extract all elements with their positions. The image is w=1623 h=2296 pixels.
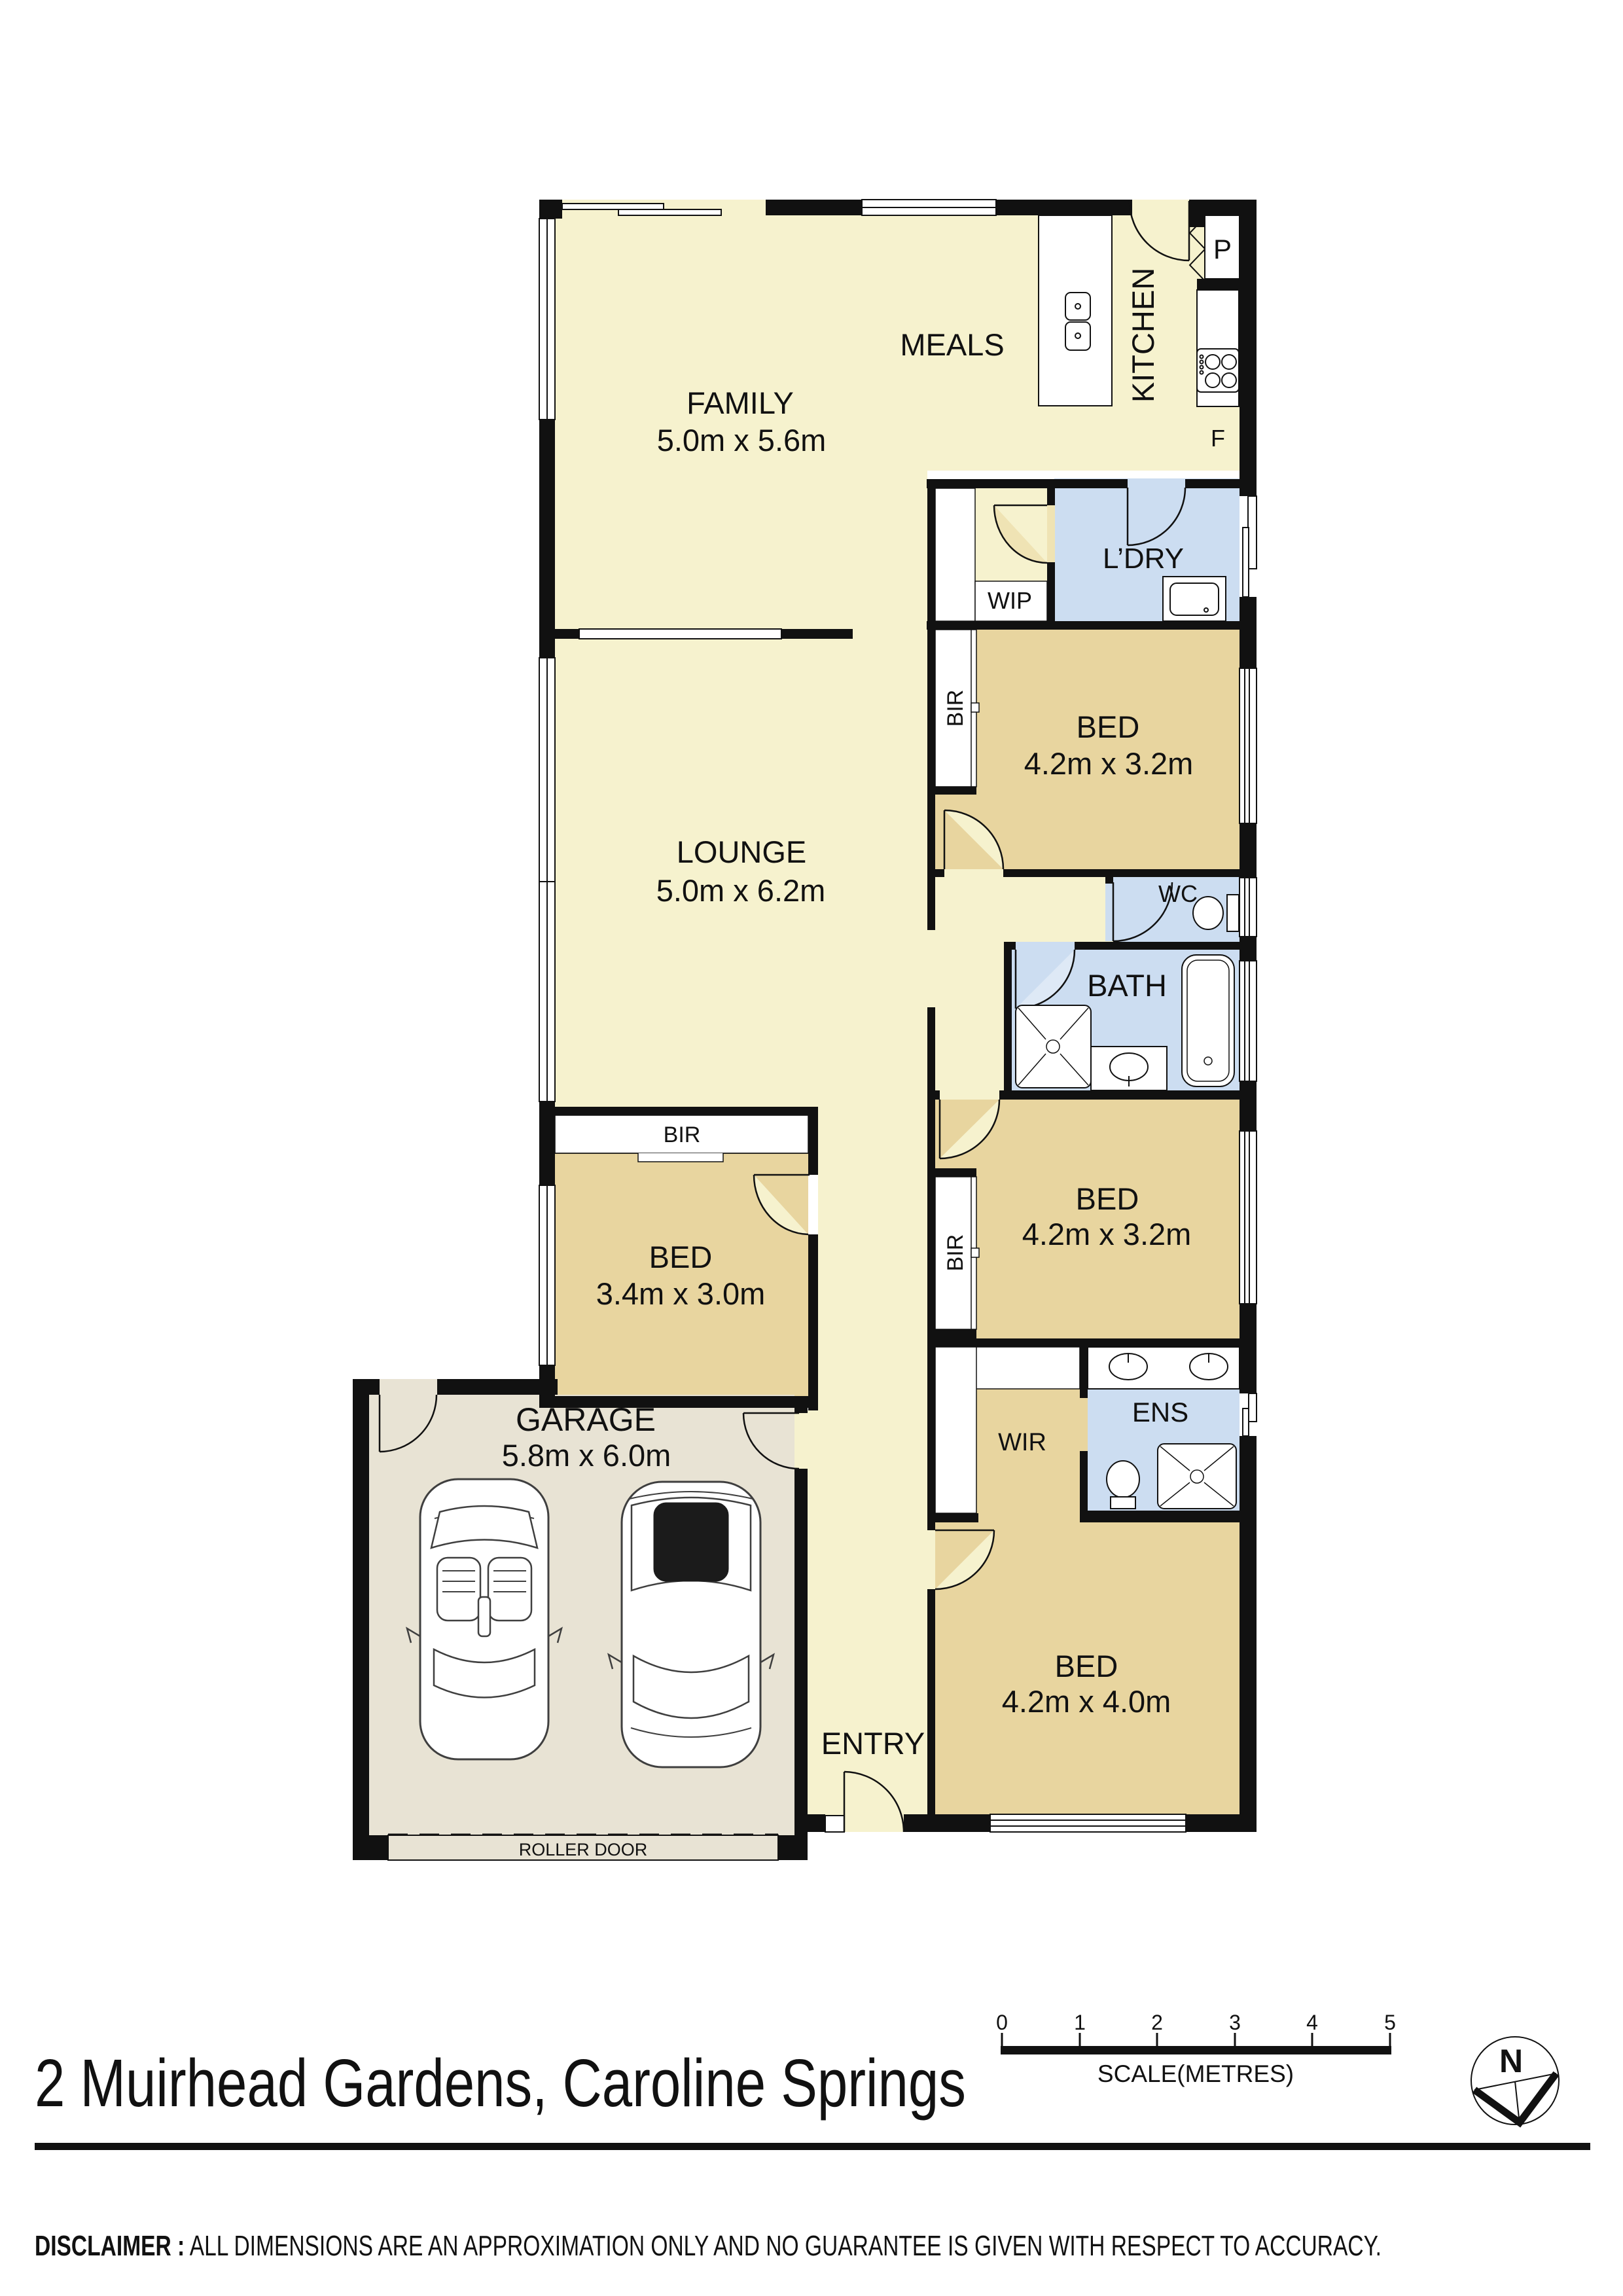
svg-text:4: 4	[1306, 2011, 1318, 2034]
svg-text:FAMILY: FAMILY	[687, 386, 794, 420]
svg-text:P: P	[1213, 234, 1232, 264]
svg-text:5.8m x 6.0m: 5.8m x 6.0m	[502, 1438, 671, 1473]
svg-text:LOUNGE: LOUNGE	[677, 834, 807, 869]
svg-text:BED: BED	[649, 1240, 713, 1274]
svg-text:ENTRY: ENTRY	[821, 1726, 925, 1761]
svg-text:L’DRY: L’DRY	[1103, 543, 1184, 575]
svg-text:2 Muirhead Gardens, Caroline S: 2 Muirhead Gardens, Caroline Springs	[35, 2045, 966, 2121]
svg-text:WC: WC	[1158, 880, 1198, 907]
svg-text:F: F	[1211, 425, 1225, 452]
svg-text:DISCLAIMER : ALL DIMENSIONS AR: DISCLAIMER : ALL DIMENSIONS ARE AN APPRO…	[35, 2230, 1382, 2262]
svg-text:0: 0	[996, 2011, 1008, 2034]
svg-text:SCALE(METRES): SCALE(METRES)	[1097, 2060, 1294, 2087]
svg-text:WIR: WIR	[998, 1429, 1046, 1456]
svg-text:4.2m x 3.2m: 4.2m x 3.2m	[1022, 1217, 1192, 1251]
svg-text:3.4m x 3.0m: 3.4m x 3.0m	[596, 1276, 766, 1311]
svg-text:4.2m x 3.2m: 4.2m x 3.2m	[1024, 746, 1194, 781]
svg-text:5: 5	[1384, 2011, 1396, 2034]
svg-text:BIR: BIR	[943, 690, 968, 727]
svg-text:BED: BED	[1076, 1181, 1139, 1216]
svg-text:BED: BED	[1055, 1649, 1118, 1683]
svg-text:1: 1	[1074, 2011, 1086, 2034]
svg-text:MEALS: MEALS	[900, 327, 1004, 362]
svg-text:3: 3	[1229, 2011, 1241, 2034]
svg-text:KITCHEN: KITCHEN	[1126, 268, 1160, 403]
svg-text:5.0m x 6.2m: 5.0m x 6.2m	[656, 873, 826, 908]
svg-text:BIR: BIR	[943, 1234, 968, 1272]
svg-text:WIP: WIP	[988, 587, 1032, 614]
svg-text:GARAGE: GARAGE	[516, 1401, 656, 1438]
svg-text:N: N	[1499, 2043, 1523, 2079]
svg-text:BATH: BATH	[1087, 968, 1167, 1003]
svg-text:ROLLER DOOR: ROLLER DOOR	[519, 1840, 648, 1859]
svg-text:2: 2	[1151, 2011, 1163, 2034]
svg-text:ENS: ENS	[1132, 1397, 1188, 1427]
svg-text:BED: BED	[1077, 709, 1140, 744]
svg-text:4.2m x 4.0m: 4.2m x 4.0m	[1002, 1684, 1171, 1719]
svg-text:BIR: BIR	[664, 1122, 701, 1147]
svg-text:5.0m x 5.6m: 5.0m x 5.6m	[657, 423, 827, 457]
